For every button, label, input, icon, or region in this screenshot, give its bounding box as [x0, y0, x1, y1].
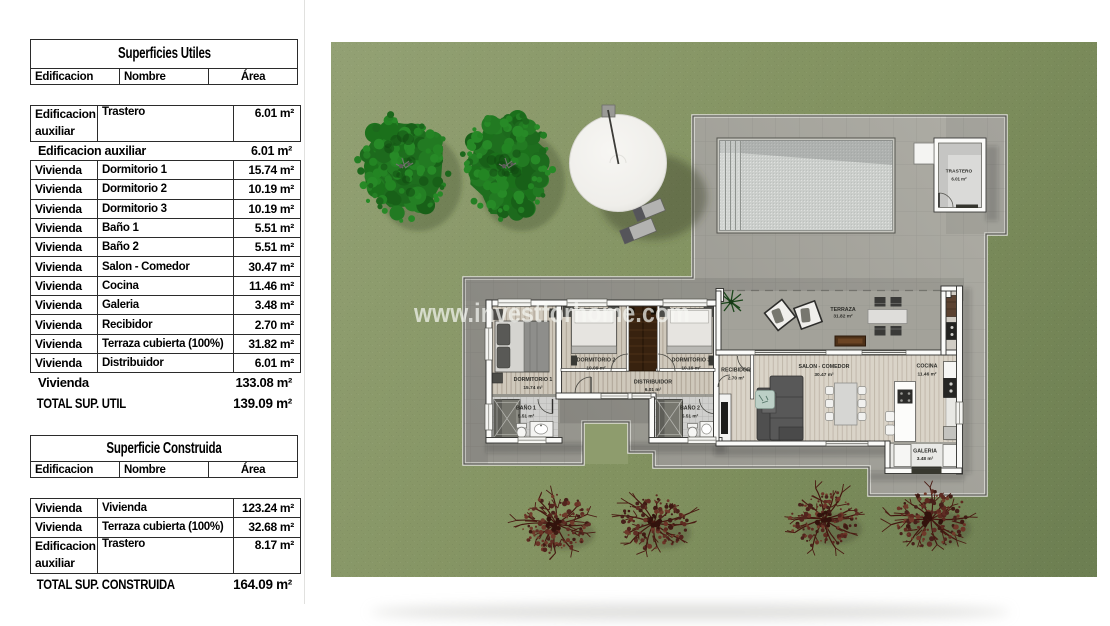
svg-text:DORMITORIO 2: DORMITORIO 2 [577, 358, 616, 364]
svg-text:COCINA: COCINA [917, 364, 938, 370]
svg-text:11.46 m²: 11.46 m² [918, 372, 937, 378]
svg-text:5.51 m²: 5.51 m² [682, 414, 699, 420]
svg-text:BAÑO 1: BAÑO 1 [516, 405, 536, 412]
svg-text:SALON - COMEDOR: SALON - COMEDOR [799, 364, 850, 370]
svg-text:BAÑO 2: BAÑO 2 [680, 405, 700, 412]
svg-text:5.51 m²: 5.51 m² [518, 414, 535, 420]
svg-text:DISTRIBUIDOR: DISTRIBUIDOR [634, 380, 672, 386]
svg-text:TERRAZA: TERRAZA [830, 307, 855, 313]
svg-text:GALERIA: GALERIA [913, 449, 937, 455]
svg-text:15.74 m²: 15.74 m² [523, 385, 543, 391]
svg-text:3.48 m²: 3.48 m² [917, 456, 934, 462]
svg-text:2.70 m²: 2.70 m² [728, 376, 745, 382]
svg-text:RECIBIDOR: RECIBIDOR [721, 368, 751, 374]
svg-text:www.investforhome.com: www.investforhome.com [413, 298, 690, 328]
svg-text:DORMITORIO 1: DORMITORIO 1 [514, 377, 553, 383]
svg-text:30.47 m²: 30.47 m² [814, 372, 834, 378]
svg-text:10.09 m²: 10.09 m² [586, 366, 606, 372]
svg-text:TRASTERO: TRASTERO [946, 169, 973, 174]
svg-text:10.19 m²: 10.19 m² [681, 366, 701, 372]
svg-text:6.01 m²: 6.01 m² [645, 387, 662, 393]
svg-text:31.82 m²: 31.82 m² [833, 314, 853, 320]
svg-text:6.01 m²: 6.01 m² [951, 177, 967, 182]
svg-text:DORMITORIO 3: DORMITORIO 3 [672, 358, 711, 364]
